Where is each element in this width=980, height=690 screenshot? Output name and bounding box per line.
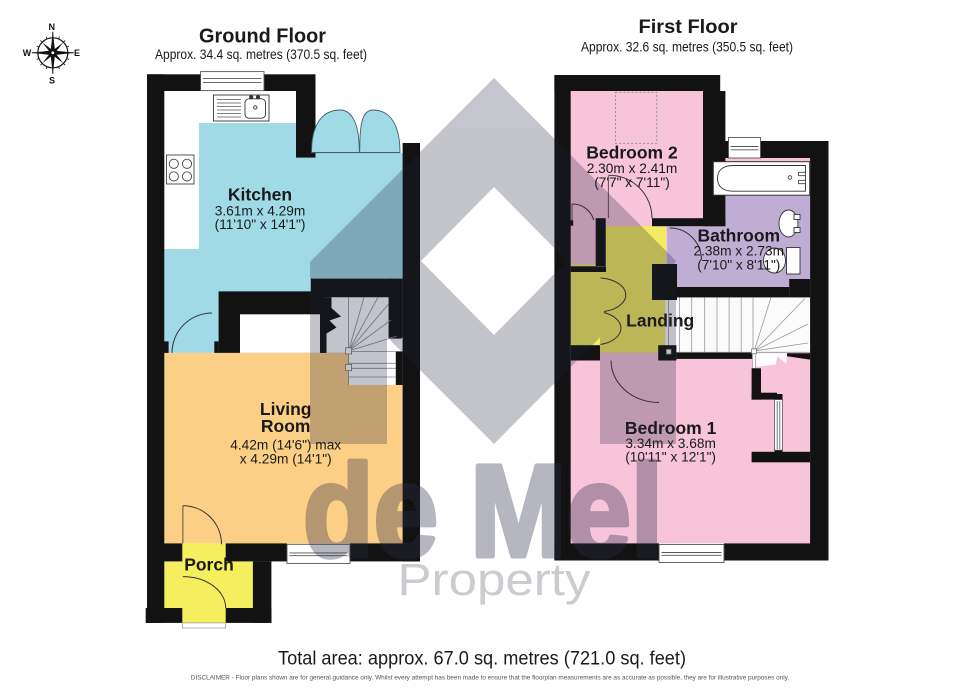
svg-text:First Floor: First Floor [639,16,738,38]
svg-text:Room: Room [261,416,311,436]
svg-text:DISCLAIMER - Floor plans show: DISCLAIMER - Floor plans shown are for g… [191,675,790,682]
svg-text:(7'10" x 8'11"): (7'10" x 8'11") [697,258,780,273]
svg-text:E: E [74,48,80,58]
svg-text:S: S [49,76,55,86]
svg-text:(7'7" x 7'11"): (7'7" x 7'11") [594,175,670,190]
svg-text:W: W [23,48,32,58]
svg-text:2.30m x 2.41m: 2.30m x 2.41m [587,161,678,176]
svg-text:(11'10" x 14'1"): (11'10" x 14'1") [215,217,306,232]
svg-text:N: N [49,22,56,32]
svg-text:Porch: Porch [184,555,234,575]
svg-text:Approx. 32.6 sq. metres (350.5: Approx. 32.6 sq. metres (350.5 sq. feet) [581,39,793,55]
svg-text:Bedroom 2: Bedroom 2 [586,143,678,163]
svg-text:Kitchen: Kitchen [228,185,292,205]
svg-text:2.38m x 2.73m: 2.38m x 2.73m [694,244,785,259]
svg-text:Total area: approx. 67.0 sq. m: Total area: approx. 67.0 sq. metres (721… [278,648,686,670]
svg-text:Property: Property [398,554,592,605]
svg-text:Approx. 34.4 sq. metres (370.5: Approx. 34.4 sq. metres (370.5 sq. feet) [155,46,367,62]
svg-text:Ground Floor: Ground Floor [199,25,326,48]
svg-text:Bathroom: Bathroom [697,226,780,246]
